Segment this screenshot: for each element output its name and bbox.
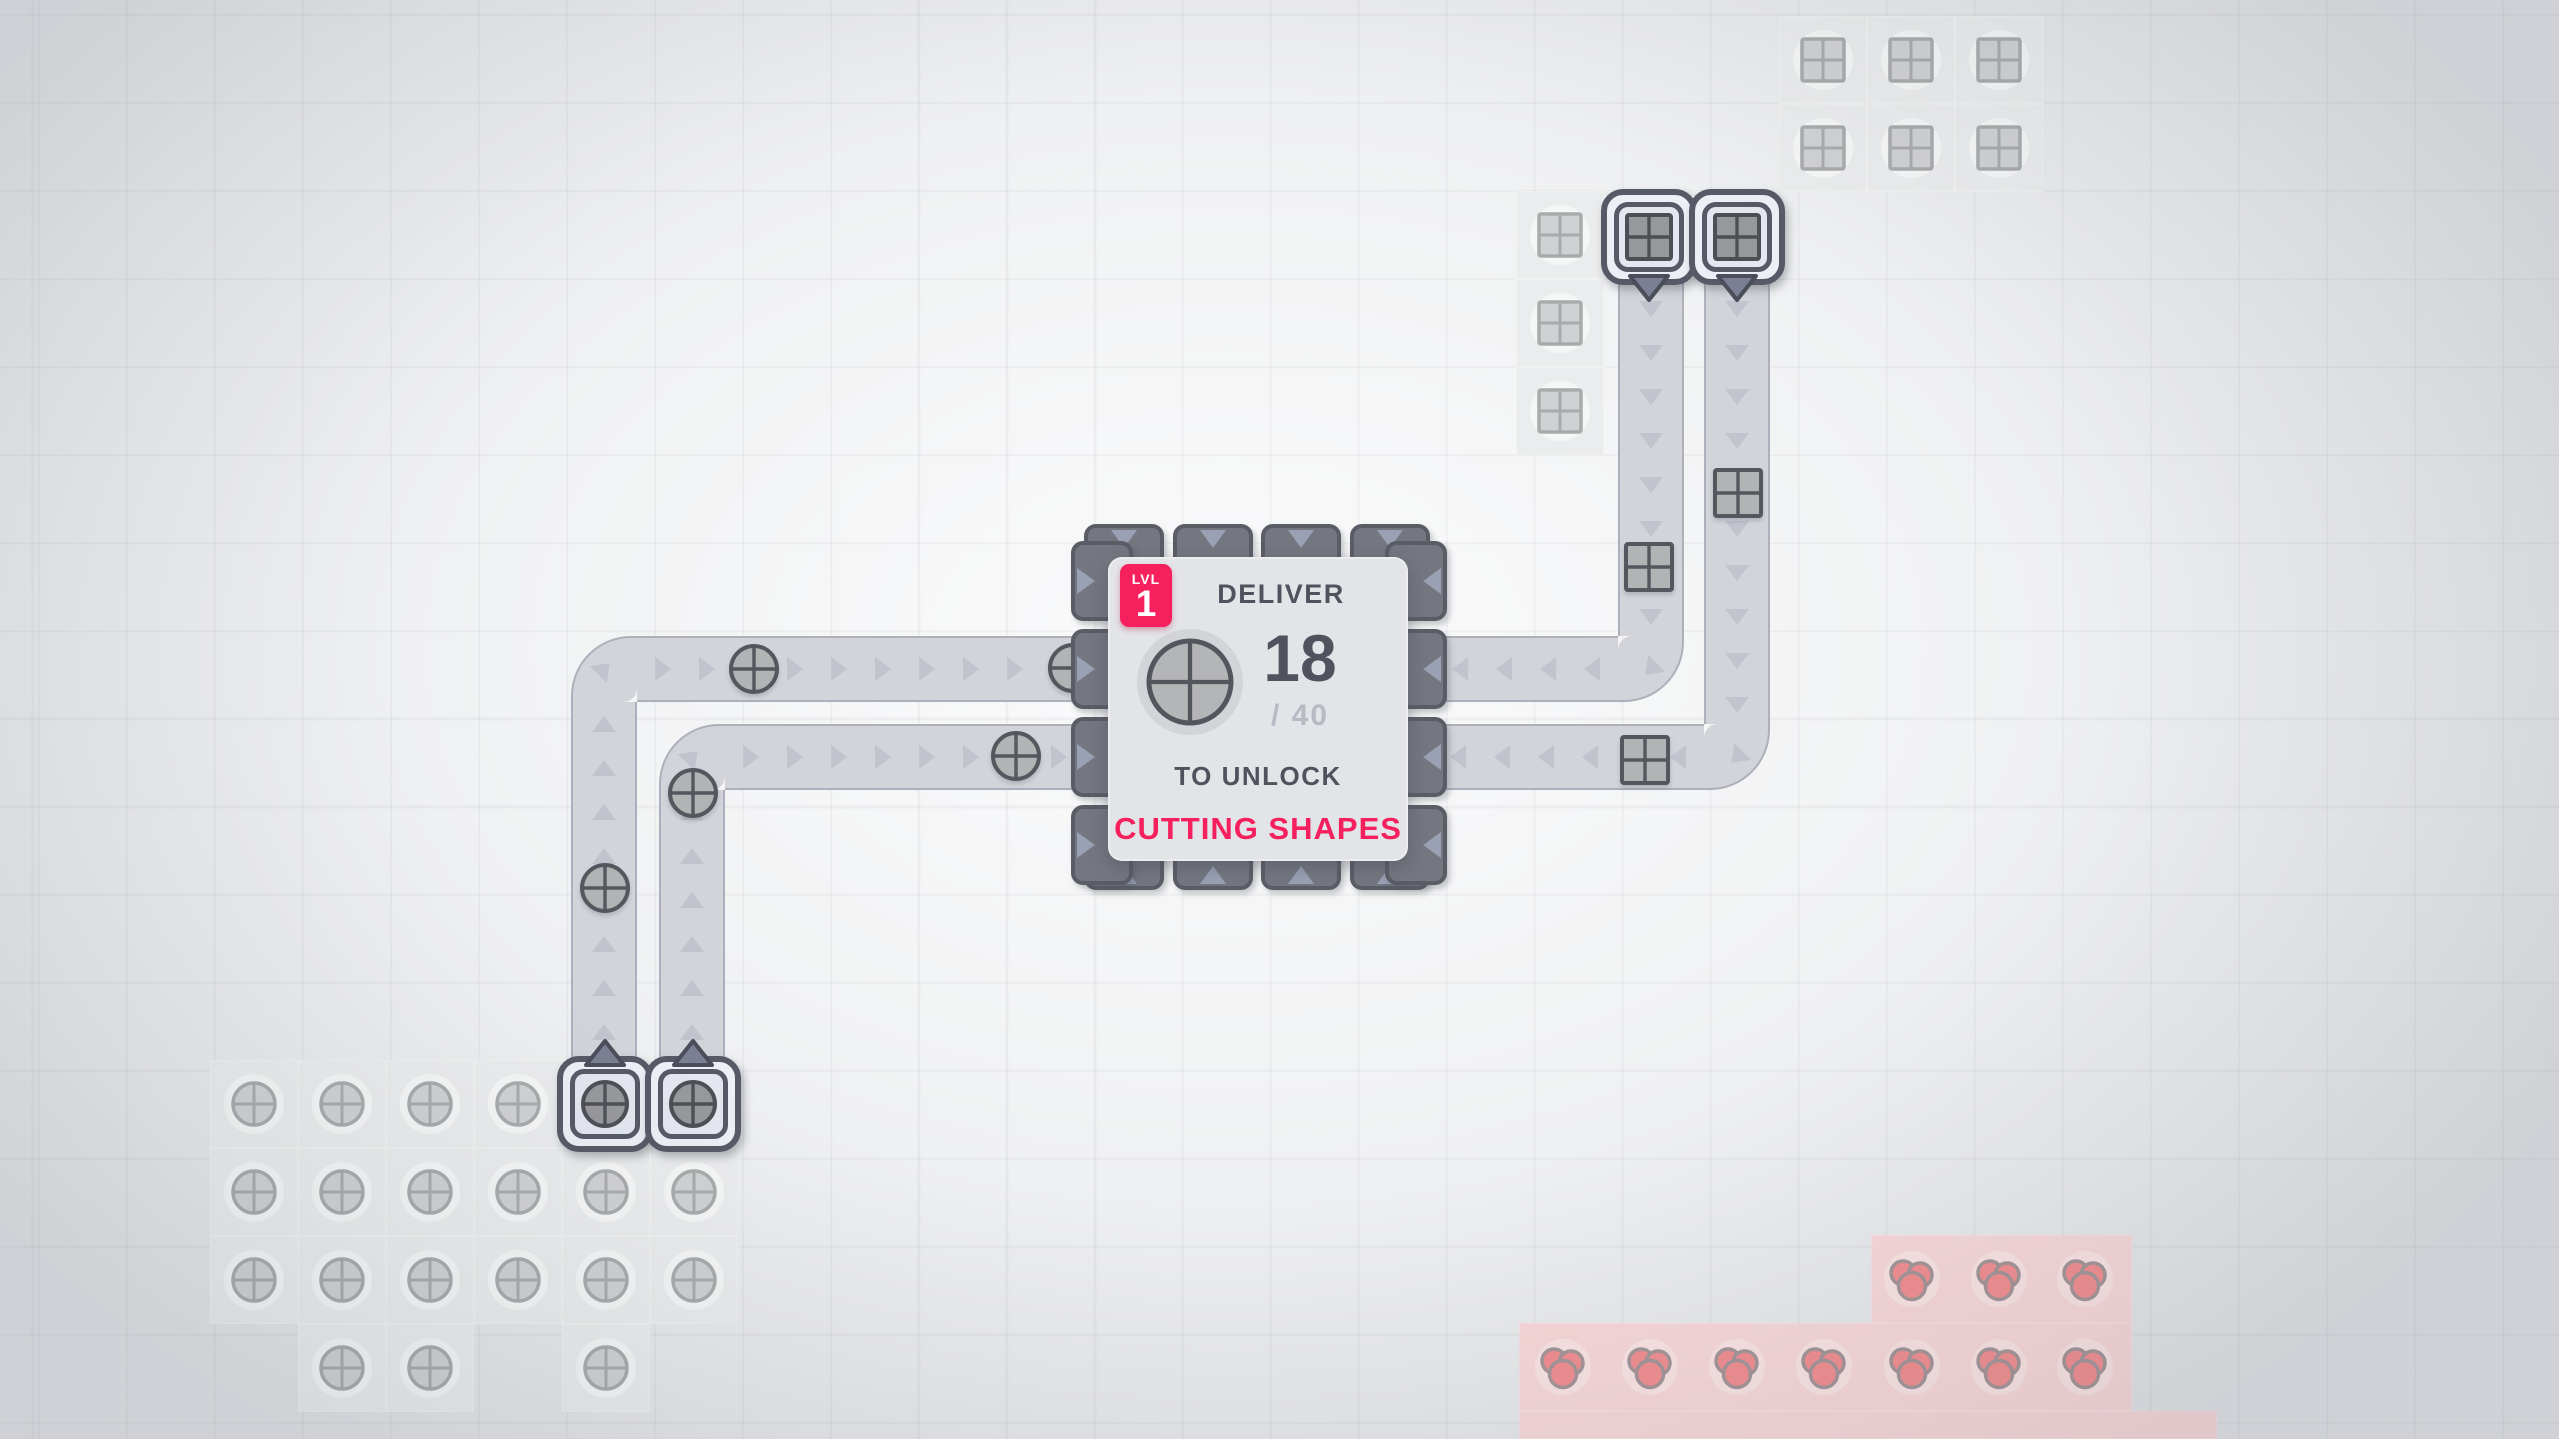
level-badge: LVL 1 — [1120, 564, 1172, 627]
level-badge-value: 1 — [1120, 587, 1172, 620]
hub-slot-arrow-icon — [1423, 744, 1441, 770]
hub-slot-arrow-icon — [1288, 866, 1314, 884]
hub-reward-label: CUTTING SHAPES — [1108, 811, 1408, 847]
hub-slot-arrow-icon — [1288, 530, 1314, 548]
hub-slot-arrow-icon — [1077, 568, 1095, 594]
hub-slot-arrow-icon — [1077, 832, 1095, 858]
delivered-count: 18 — [1248, 625, 1352, 691]
hub-slot-arrow-icon — [1200, 866, 1226, 884]
goal-shape-circle-icon — [1135, 627, 1245, 742]
hub-slot-arrow-icon — [1423, 832, 1441, 858]
hub-unlock-label: TO UNLOCK — [1108, 761, 1408, 792]
hub-slot-arrow-icon — [1077, 656, 1095, 682]
hub-slot-arrow-icon — [1077, 744, 1095, 770]
hub-slot-arrow-icon — [1200, 530, 1226, 548]
hub-deliver-label: DELIVER — [1168, 579, 1394, 610]
goal-count: / 40 — [1248, 699, 1352, 733]
game-viewport[interactable]: LVL 1 DELIVER 18 / 40 TO UNLOCK CUTTING … — [0, 0, 2559, 1439]
hub[interactable]: LVL 1 DELIVER 18 / 40 TO UNLOCK CUTTING … — [1108, 557, 1408, 861]
hub-slot-arrow-icon — [1423, 656, 1441, 682]
hub-slot-arrow-icon — [1423, 568, 1441, 594]
